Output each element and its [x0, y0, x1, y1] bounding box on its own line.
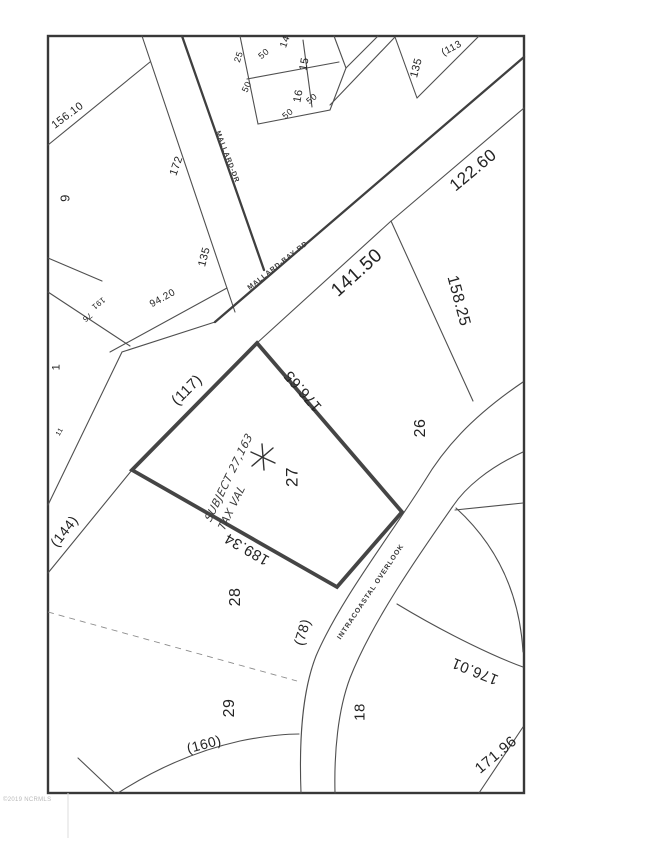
lot-number-16: 16: [292, 89, 305, 104]
lot-number-1: 1: [52, 364, 63, 371]
lot-number-28: 28: [228, 588, 244, 607]
plat-map-page: MALLARD-DR MALLARD-BAY-RD INTRACOASTAL O…: [0, 0, 650, 841]
parcel-lines: [48, 36, 524, 793]
lot-number-9: 9: [59, 194, 72, 202]
lot-number-27: 27: [284, 467, 301, 487]
map-frame-border: [48, 36, 524, 793]
lot-number-18: 18: [353, 703, 368, 721]
lot-number-26: 26: [413, 419, 429, 438]
lot-number-29: 29: [222, 699, 238, 718]
watermark-text: ©2019 NCRMLS: [3, 797, 51, 803]
lot-number-15: 15: [298, 57, 311, 72]
dashed-lot-divider: [48, 612, 297, 681]
plat-linework: [0, 0, 650, 841]
